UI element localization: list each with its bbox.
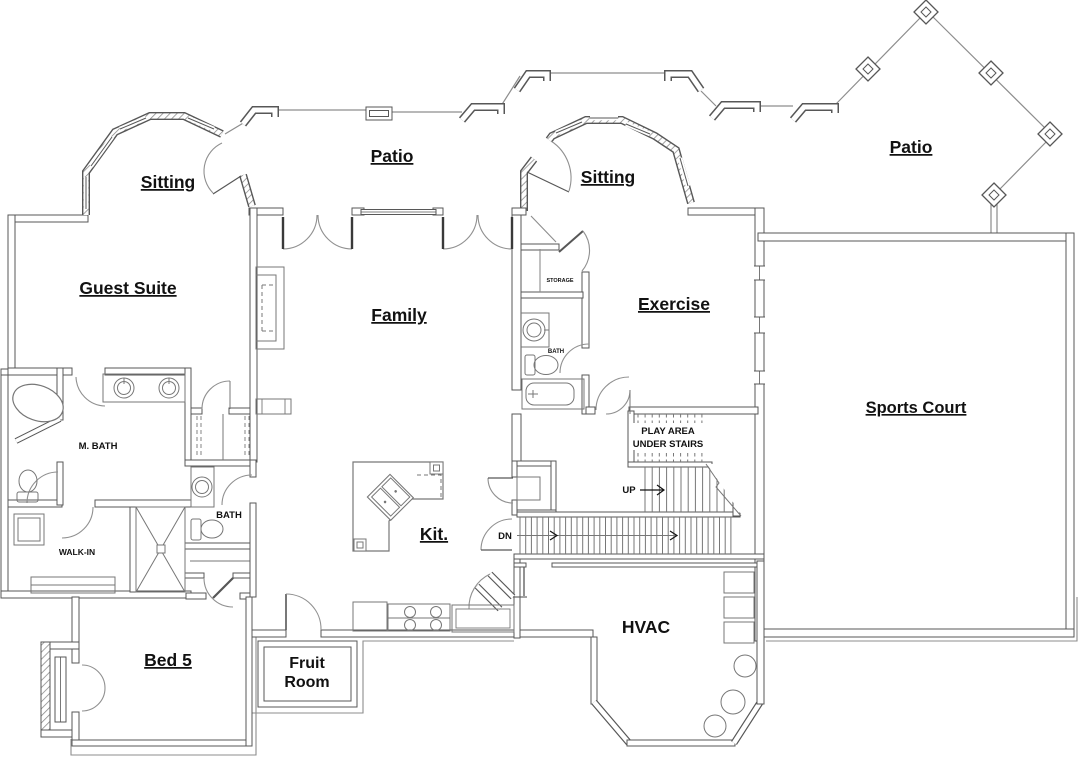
svg-text:UNDER STAIRS: UNDER STAIRS bbox=[633, 439, 704, 450]
svg-text:BATH: BATH bbox=[216, 510, 242, 521]
svg-text:DN: DN bbox=[498, 531, 512, 542]
svg-text:Family: Family bbox=[371, 305, 427, 325]
svg-text:BATH: BATH bbox=[548, 349, 564, 355]
svg-text:Sitting: Sitting bbox=[141, 172, 195, 192]
svg-text:Room: Room bbox=[284, 674, 329, 691]
svg-text:Sports Court: Sports Court bbox=[866, 399, 967, 417]
svg-text:Patio: Patio bbox=[371, 146, 414, 166]
svg-text:Guest Suite: Guest Suite bbox=[79, 278, 177, 298]
svg-text:Bed 5: Bed 5 bbox=[144, 650, 192, 670]
svg-text:Fruit: Fruit bbox=[289, 655, 325, 672]
svg-text:Sitting: Sitting bbox=[581, 167, 635, 187]
svg-text:STORAGE: STORAGE bbox=[546, 278, 573, 284]
svg-text:M. BATH: M. BATH bbox=[79, 441, 118, 452]
svg-text:Exercise: Exercise bbox=[638, 294, 710, 314]
svg-text:HVAC: HVAC bbox=[622, 617, 671, 637]
svg-text:PLAY AREA: PLAY AREA bbox=[641, 426, 695, 437]
svg-text:Kit.: Kit. bbox=[420, 524, 448, 544]
svg-text:WALK-IN: WALK-IN bbox=[59, 547, 95, 557]
svg-text:UP: UP bbox=[622, 485, 636, 496]
svg-text:Patio: Patio bbox=[890, 137, 933, 157]
